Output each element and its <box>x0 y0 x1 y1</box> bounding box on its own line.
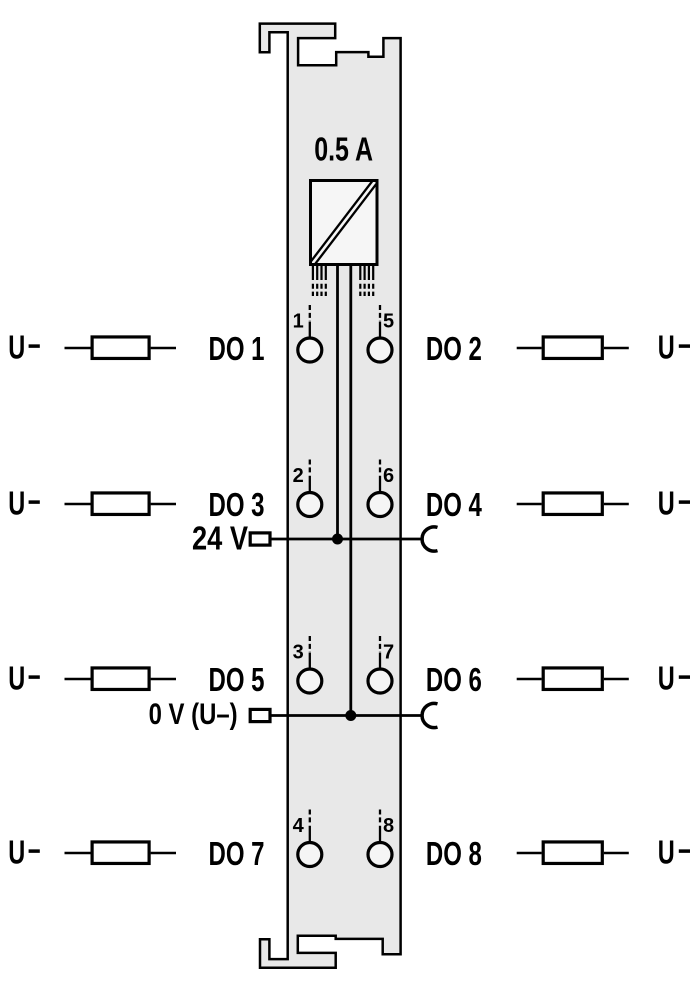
svg-text:0 V (U–): 0 V (U–) <box>149 698 238 731</box>
svg-text:U: U <box>8 485 25 522</box>
svg-text:5: 5 <box>383 311 394 333</box>
svg-text:U: U <box>658 485 675 522</box>
svg-text:DO 7: DO 7 <box>209 836 265 873</box>
svg-text:3: 3 <box>293 642 304 664</box>
svg-text:DO 6: DO 6 <box>426 662 482 699</box>
svg-text:7: 7 <box>383 642 394 664</box>
svg-text:DO 3: DO 3 <box>209 487 265 524</box>
svg-text:0.5 A: 0.5 A <box>314 130 373 167</box>
svg-text:8: 8 <box>383 815 394 837</box>
svg-text:U: U <box>658 329 675 366</box>
svg-text:U: U <box>8 834 25 871</box>
svg-text:24 V: 24 V <box>192 520 248 557</box>
svg-text:DO 5: DO 5 <box>209 662 265 699</box>
svg-text:2: 2 <box>293 465 304 487</box>
svg-text:DO 8: DO 8 <box>426 836 482 873</box>
svg-text:DO 4: DO 4 <box>426 487 482 524</box>
svg-text:DO 1: DO 1 <box>209 331 265 368</box>
svg-text:U: U <box>8 329 25 366</box>
svg-text:1: 1 <box>293 311 304 333</box>
svg-text:U: U <box>8 660 25 697</box>
svg-text:DO 2: DO 2 <box>426 331 482 368</box>
svg-text:6: 6 <box>383 465 394 487</box>
svg-text:U: U <box>658 660 675 697</box>
svg-text:4: 4 <box>293 815 305 837</box>
svg-text:U: U <box>658 834 675 871</box>
